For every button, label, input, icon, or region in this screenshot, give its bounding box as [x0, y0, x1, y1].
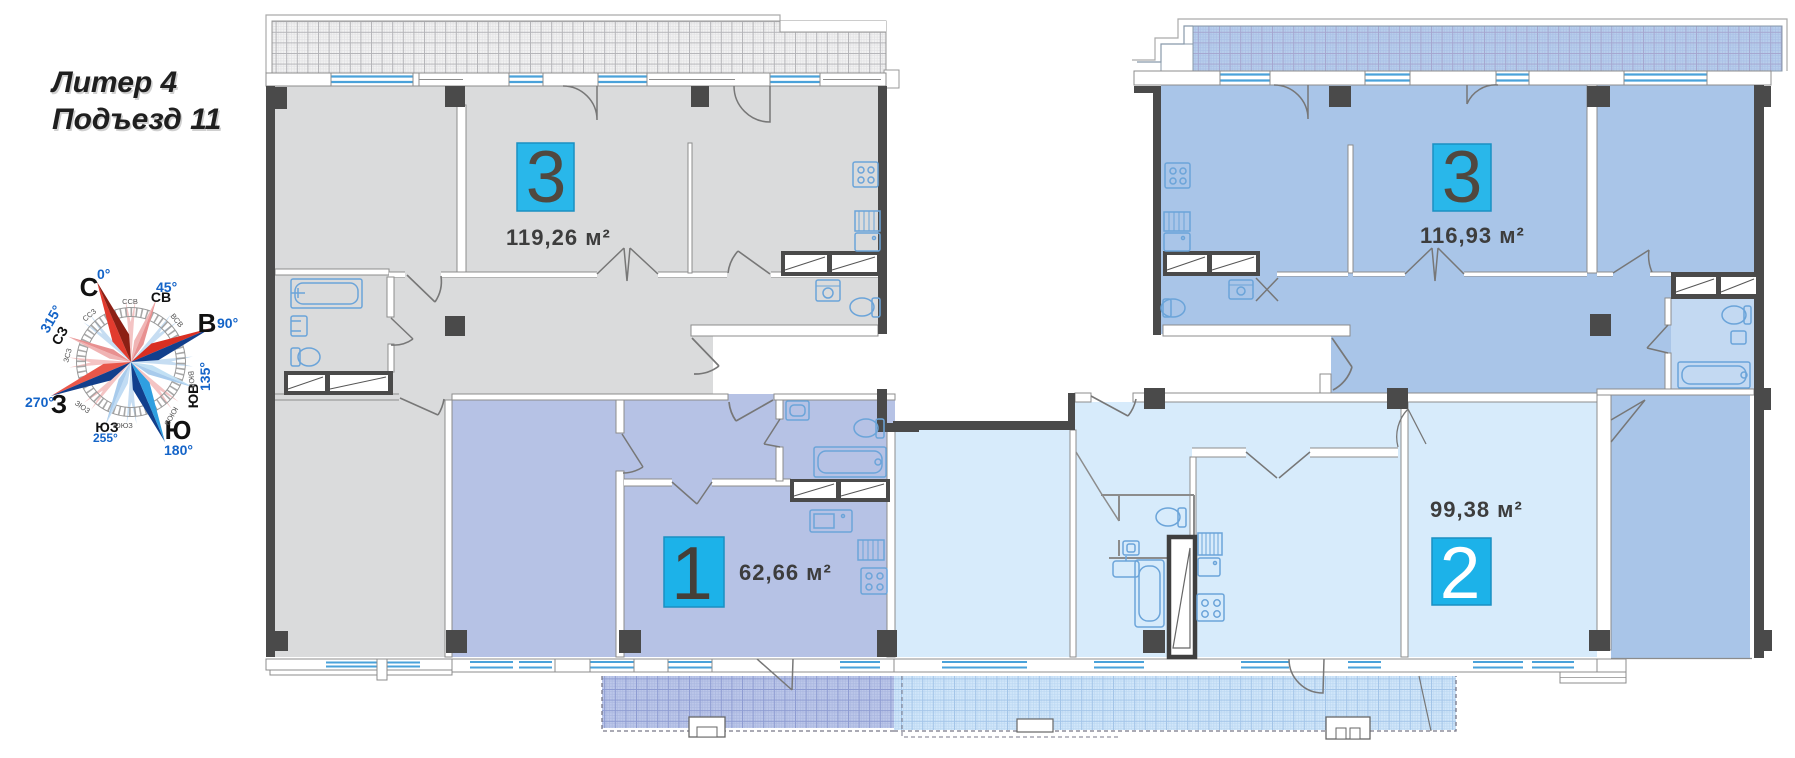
svg-text:ВЮВ: ВЮВ	[186, 371, 196, 389]
svg-text:1: 1	[671, 531, 713, 615]
svg-text:Литер 4: Литер 4	[50, 66, 178, 99]
svg-text:135°: 135°	[197, 362, 213, 391]
svg-text:ССВ: ССВ	[122, 297, 138, 306]
svg-text:С: С	[80, 272, 99, 302]
svg-text:119,26 м²: 119,26 м²	[506, 225, 611, 250]
svg-text:90°: 90°	[217, 315, 238, 331]
svg-text:255°: 255°	[93, 431, 118, 445]
svg-text:99,38 м²: 99,38 м²	[1430, 497, 1523, 522]
svg-text:62,66 м²: 62,66 м²	[739, 560, 832, 585]
svg-text:3: 3	[526, 137, 567, 218]
svg-text:180°: 180°	[164, 442, 193, 458]
svg-text:270°: 270°	[25, 394, 54, 410]
svg-text:116,93 м²: 116,93 м²	[1420, 223, 1525, 248]
svg-text:3: 3	[1442, 137, 1483, 218]
svg-text:ЮЮЗ: ЮЮЗ	[113, 421, 133, 430]
svg-text:Подъезд 11: Подъезд 11	[52, 103, 221, 136]
svg-text:В: В	[198, 308, 217, 338]
svg-text:45°: 45°	[156, 279, 177, 295]
svg-text:0°: 0°	[97, 266, 110, 282]
svg-text:2: 2	[1440, 533, 1481, 614]
